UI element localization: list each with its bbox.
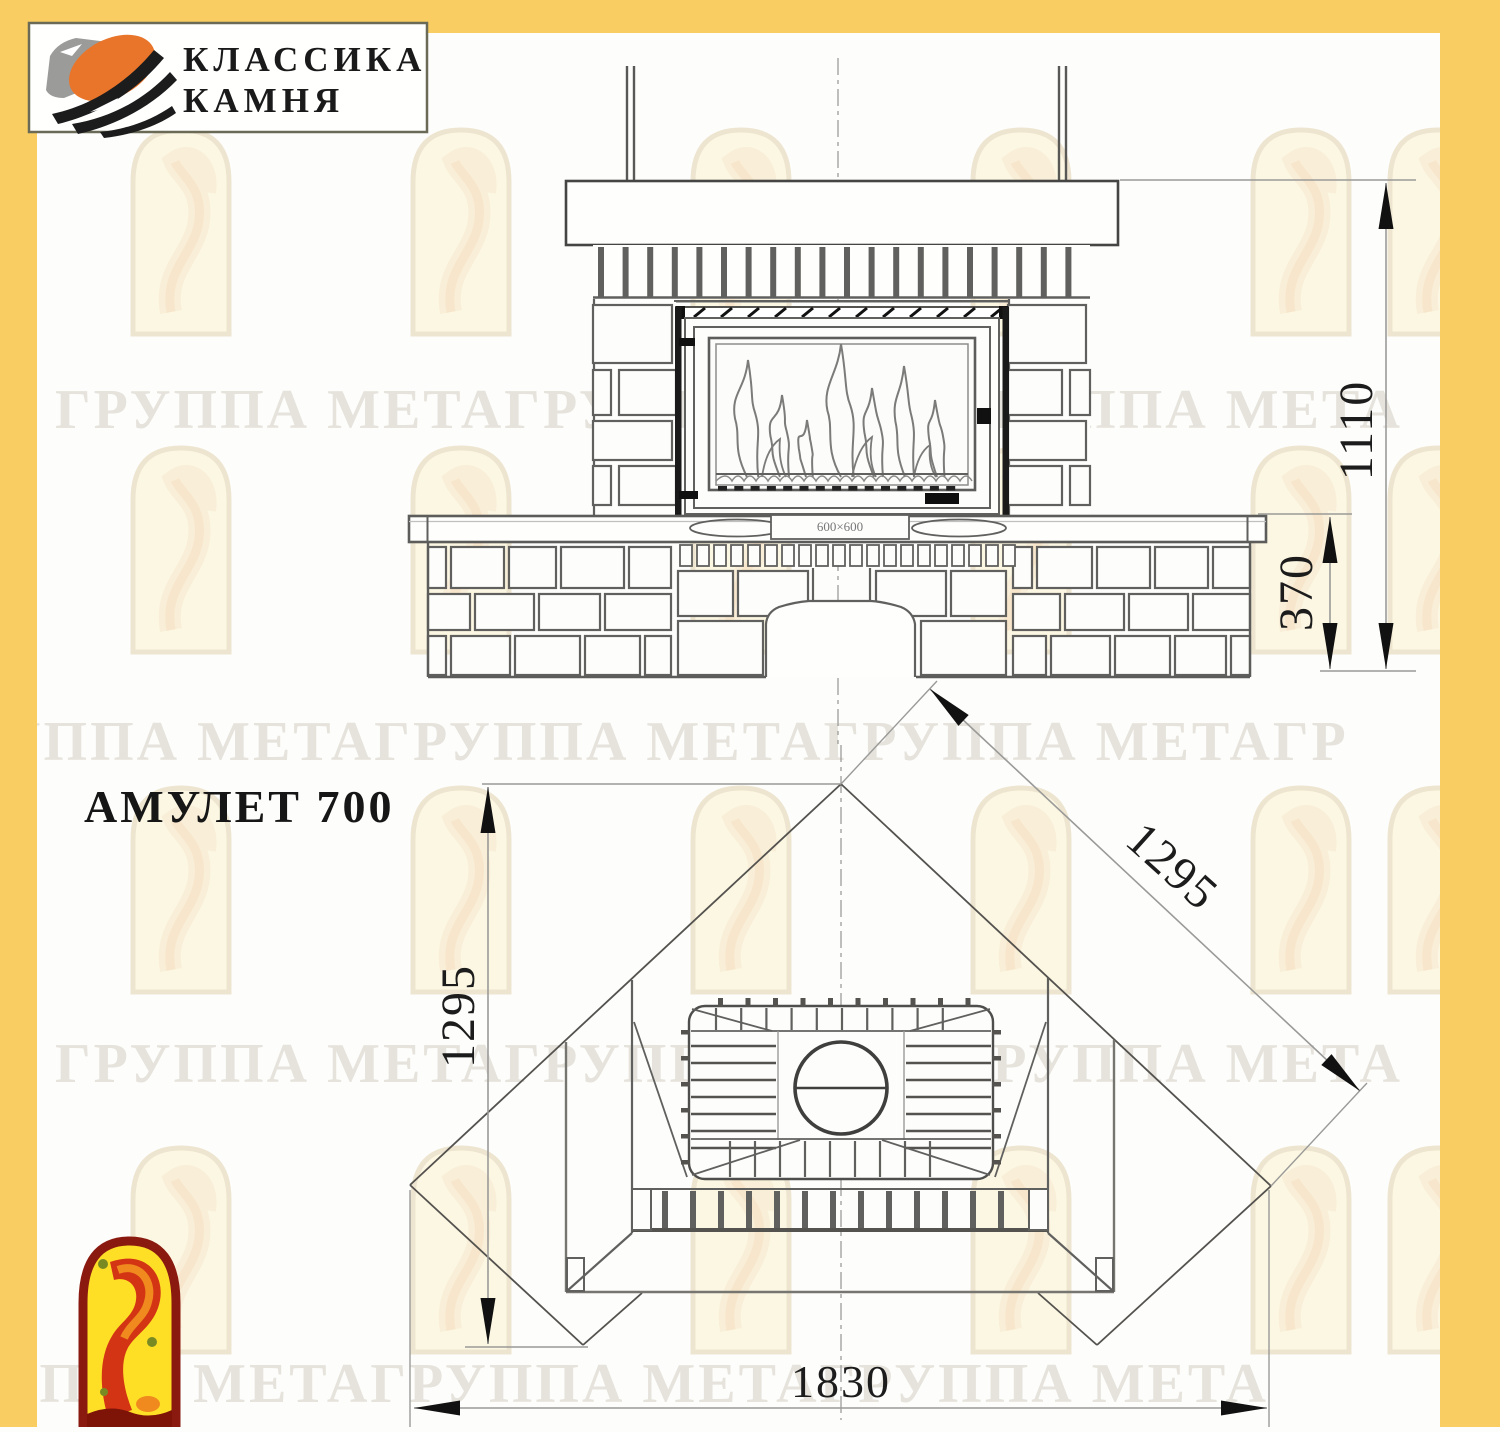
- svg-text:ГРУППА МЕТАГРУППА МЕТАГРУППА М: ГРУППА МЕТАГРУППА МЕТАГРУППА МЕТАГР: [0, 711, 1349, 773]
- svg-text:КАМНЯ: КАМНЯ: [183, 81, 344, 120]
- svg-text:1830: 1830: [791, 1356, 891, 1407]
- svg-text:1295: 1295: [432, 964, 485, 1068]
- svg-text:370: 370: [1270, 553, 1323, 631]
- svg-text:КЛАССИКА: КЛАССИКА: [183, 40, 426, 79]
- svg-text:АМУЛЕТ 700: АМУЛЕТ 700: [84, 781, 394, 832]
- svg-text:1110: 1110: [1330, 380, 1383, 480]
- svg-text:ТАГРУППА МЕТАГРУППА МЕТАГРУППА: ТАГРУППА МЕТАГРУППА МЕТАГРУППА МЕТА: [0, 1353, 1269, 1415]
- svg-text:600×600: 600×600: [817, 519, 863, 534]
